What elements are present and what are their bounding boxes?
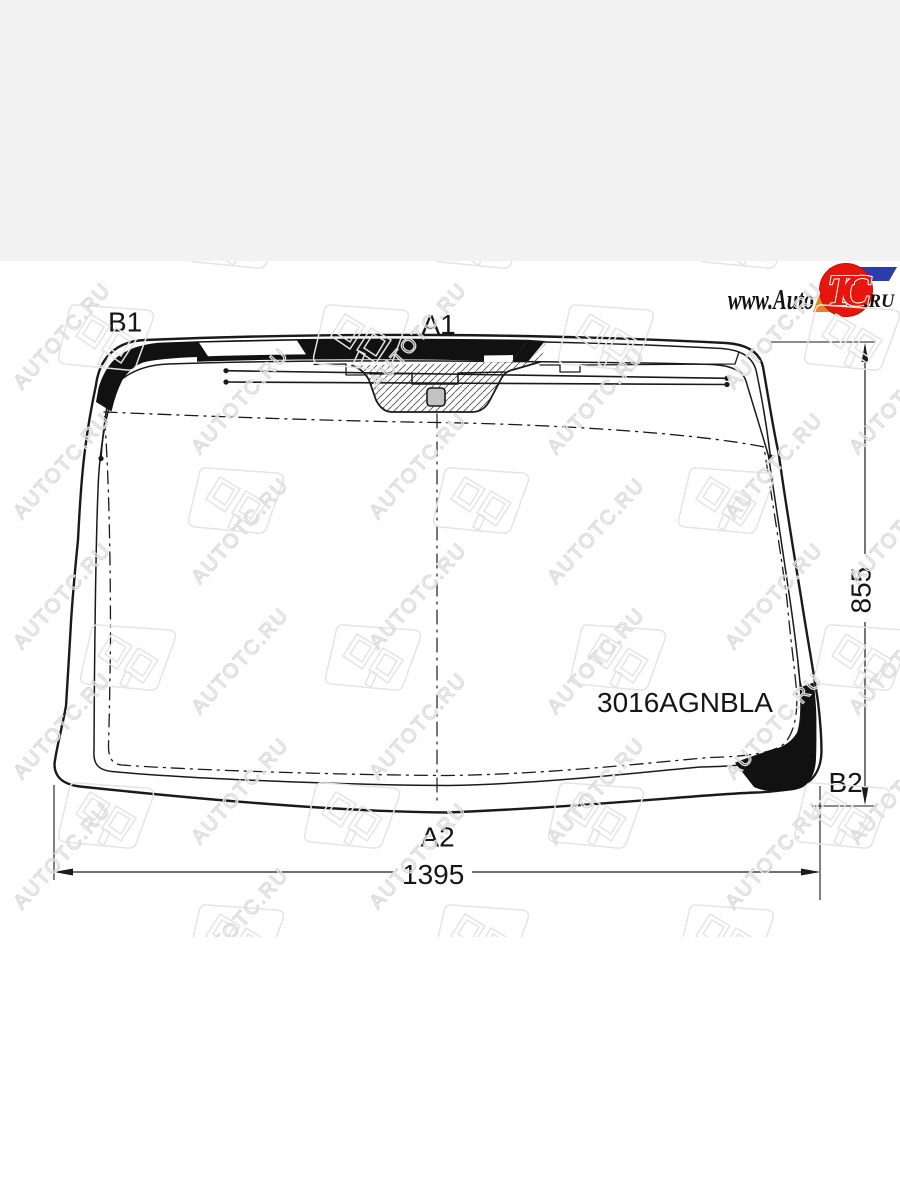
svg-text:3016AGNBLA: 3016AGNBLA <box>597 687 773 718</box>
svg-text:B2: B2 <box>829 767 863 798</box>
